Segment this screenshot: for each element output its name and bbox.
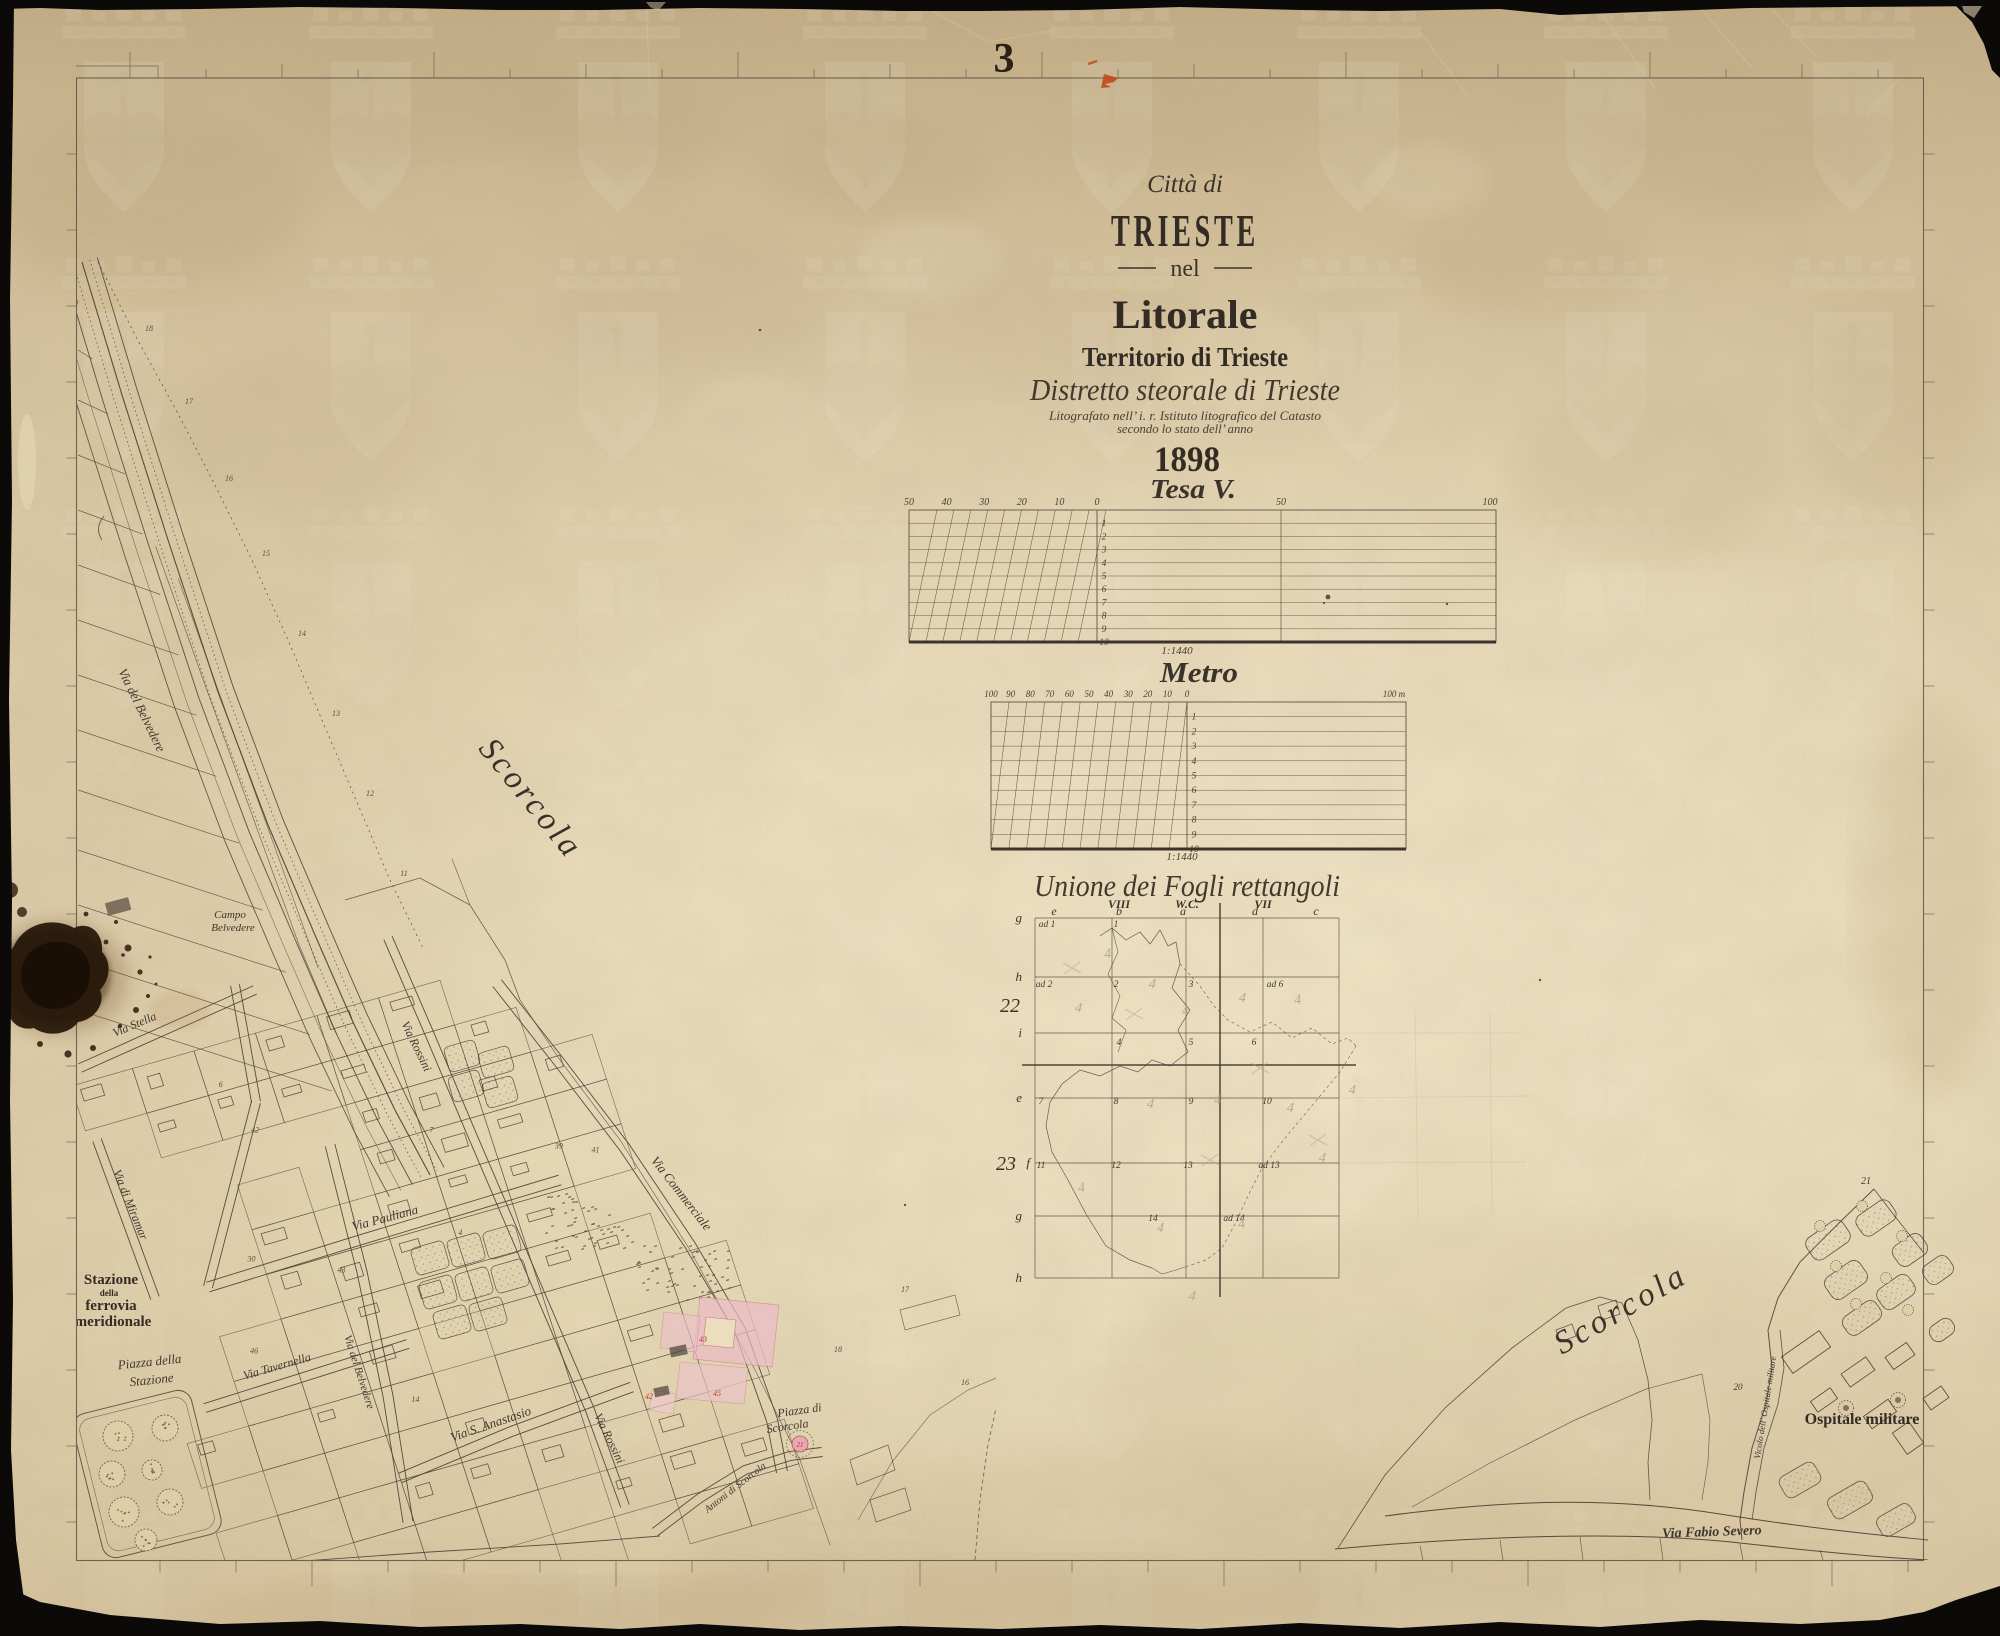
svg-text:17: 17 <box>901 1285 910 1294</box>
svg-text:ad 1: ad 1 <box>1039 920 1056 930</box>
svg-text:1: 1 <box>1102 519 1107 529</box>
svg-text:Territorio di Trieste: Territorio di Trieste <box>1082 342 1288 372</box>
svg-text:8: 8 <box>1192 816 1197 826</box>
svg-text:100 m: 100 m <box>1383 689 1406 699</box>
svg-text:4: 4 <box>458 1228 462 1237</box>
svg-text:Ospitale militare: Ospitale militare <box>1805 1411 1920 1428</box>
svg-text:40: 40 <box>1104 689 1114 699</box>
svg-text:i: i <box>1018 1025 1022 1040</box>
svg-text:90: 90 <box>1006 689 1016 699</box>
svg-text:13: 13 <box>1183 1161 1193 1171</box>
svg-text:40: 40 <box>942 497 952 508</box>
svg-text:20: 20 <box>1734 1382 1744 1392</box>
svg-text:Belvedere: Belvedere <box>211 922 255 934</box>
svg-text:30: 30 <box>978 497 989 508</box>
svg-text:h: h <box>1016 969 1023 984</box>
svg-text:43: 43 <box>337 1265 345 1274</box>
svg-text:16: 16 <box>225 474 233 483</box>
svg-text:6: 6 <box>1252 1038 1257 1048</box>
svg-text:4: 4 <box>1348 1083 1356 1099</box>
svg-text:e: e <box>1051 904 1057 918</box>
svg-text:10: 10 <box>1262 1097 1272 1107</box>
svg-text:16: 16 <box>961 1378 969 1387</box>
svg-text:6: 6 <box>1102 585 1107 595</box>
svg-text:Litorale: Litorale <box>1113 292 1258 337</box>
svg-text:43: 43 <box>699 1335 707 1344</box>
svg-text:5: 5 <box>1189 1038 1194 1048</box>
svg-text:10: 10 <box>1163 689 1173 699</box>
svg-text:8: 8 <box>1114 1097 1119 1107</box>
svg-text:6: 6 <box>219 1080 223 1089</box>
svg-text:4: 4 <box>1102 559 1107 569</box>
svg-text:1:1440: 1:1440 <box>1166 851 1198 863</box>
svg-text:39: 39 <box>554 1142 563 1151</box>
svg-text:18: 18 <box>834 1345 842 1354</box>
svg-text:Città di: Città di <box>1147 171 1223 198</box>
svg-text:d: d <box>1252 904 1259 918</box>
svg-text:15: 15 <box>262 549 270 558</box>
svg-text:3: 3 <box>1101 546 1107 556</box>
svg-text:secondo lo stato dell’ anno: secondo lo stato dell’ anno <box>1117 421 1253 436</box>
svg-text:3: 3 <box>1191 742 1197 752</box>
svg-text:70: 70 <box>1045 689 1055 699</box>
svg-text:Distretto steorale di Trieste: Distretto steorale di Trieste <box>1029 372 1340 407</box>
svg-text:12: 12 <box>1111 1161 1121 1171</box>
svg-text:13: 13 <box>332 709 340 718</box>
svg-text:21: 21 <box>797 1441 804 1449</box>
svg-text:14: 14 <box>298 629 306 638</box>
svg-text:4: 4 <box>1188 1289 1196 1305</box>
svg-text:Metro: Metro <box>1159 657 1238 689</box>
svg-text:41: 41 <box>592 1146 600 1155</box>
svg-text:11: 11 <box>1037 1161 1046 1171</box>
svg-text:ad 13: ad 13 <box>1258 1161 1280 1171</box>
svg-text:h: h <box>1016 1270 1023 1285</box>
svg-text:45: 45 <box>713 1389 721 1398</box>
svg-text:50: 50 <box>1085 689 1095 699</box>
svg-text:g: g <box>1016 910 1023 925</box>
svg-text:18: 18 <box>145 324 153 333</box>
svg-text:20: 20 <box>1143 689 1153 699</box>
svg-text:ad 2: ad 2 <box>1036 980 1053 990</box>
svg-text:9: 9 <box>1102 625 1107 635</box>
svg-text:30: 30 <box>1123 689 1134 699</box>
svg-text:meridionale: meridionale <box>75 1314 152 1330</box>
svg-text:1: 1 <box>1114 920 1119 930</box>
svg-text:5: 5 <box>1102 572 1107 582</box>
svg-text:46: 46 <box>250 1346 258 1355</box>
svg-text:9: 9 <box>1192 830 1197 840</box>
svg-text:42: 42 <box>645 1392 653 1401</box>
svg-text:2: 2 <box>1192 727 1197 737</box>
svg-text:3: 3 <box>1188 980 1194 990</box>
svg-text:50: 50 <box>1276 497 1286 508</box>
svg-text:14: 14 <box>411 1395 419 1404</box>
svg-text:1:1440: 1:1440 <box>1161 645 1193 657</box>
svg-text:c: c <box>1313 904 1319 918</box>
svg-text:1898: 1898 <box>1154 439 1220 479</box>
svg-text:8: 8 <box>1102 612 1107 622</box>
svg-text:4: 4 <box>1294 993 1302 1009</box>
svg-text:ferrovia: ferrovia <box>85 1298 137 1314</box>
svg-text:2: 2 <box>1102 532 1107 542</box>
svg-text:23: 23 <box>996 1153 1016 1175</box>
svg-text:Tesa V.: Tesa V. <box>1150 474 1236 504</box>
svg-text:W.C.: W.C. <box>1175 897 1199 911</box>
svg-text:1: 1 <box>1192 713 1197 723</box>
svg-text:3: 3 <box>994 36 1015 82</box>
svg-text:9: 9 <box>1189 1097 1194 1107</box>
svg-text:80: 80 <box>1026 689 1036 699</box>
svg-text:6: 6 <box>1192 786 1197 796</box>
svg-text:11: 11 <box>400 869 407 878</box>
svg-text:12: 12 <box>366 789 374 798</box>
svg-text:nel: nel <box>1170 256 1200 282</box>
svg-text:42: 42 <box>251 1125 259 1134</box>
svg-text:60: 60 <box>1065 689 1075 699</box>
svg-text:22: 22 <box>1000 995 1020 1017</box>
svg-text:5: 5 <box>1192 772 1197 782</box>
svg-text:4: 4 <box>1286 1101 1294 1117</box>
svg-text:a: a <box>1180 904 1186 918</box>
svg-text:4: 4 <box>1192 757 1197 767</box>
svg-text:4: 4 <box>1117 1038 1122 1048</box>
svg-text:4: 4 <box>1148 977 1156 993</box>
svg-text:17: 17 <box>185 397 194 406</box>
svg-text:21: 21 <box>1861 1176 1871 1187</box>
svg-text:50: 50 <box>904 497 914 508</box>
svg-text:e: e <box>1016 1090 1022 1105</box>
svg-text:0: 0 <box>1095 497 1100 508</box>
svg-text:TRIESTE: TRIESTE <box>1111 205 1259 256</box>
svg-text:Stazione: Stazione <box>84 1272 139 1288</box>
svg-text:della: della <box>100 1288 119 1298</box>
svg-text:ad 6: ad 6 <box>1267 980 1284 990</box>
svg-text:Campo: Campo <box>214 909 246 921</box>
svg-text:30: 30 <box>247 1254 256 1263</box>
svg-text:100: 100 <box>1483 497 1498 508</box>
svg-text:20: 20 <box>1017 497 1027 508</box>
svg-text:10: 10 <box>1054 497 1064 508</box>
svg-text:100: 100 <box>984 689 998 699</box>
svg-text:0: 0 <box>1185 689 1190 699</box>
svg-text:g: g <box>1016 1208 1023 1223</box>
svg-text:b: b <box>1116 904 1122 918</box>
